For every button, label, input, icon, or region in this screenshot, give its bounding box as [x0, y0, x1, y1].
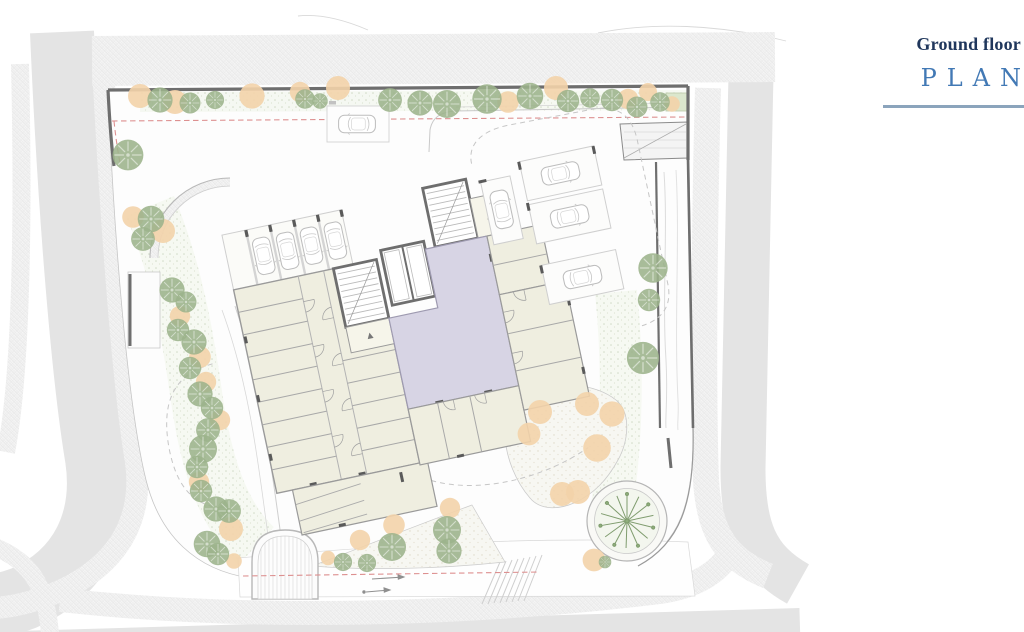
- floor-label: Ground floor: [883, 34, 1021, 55]
- plan-title: PLAN: [883, 64, 1024, 92]
- page: Ground floor PLAN: [0, 0, 1024, 632]
- site-plan-drawing: [0, 0, 1024, 632]
- bottom-road: [0, 628, 800, 632]
- parking-bay: [128, 272, 160, 348]
- title-underline: [883, 105, 1024, 108]
- title-block: Ground floor PLAN: [883, 34, 1024, 108]
- entry-canopy: [252, 530, 318, 599]
- right-road: [743, 34, 798, 584]
- tree-planter: [587, 481, 667, 561]
- visitor-stall: [327, 101, 389, 142]
